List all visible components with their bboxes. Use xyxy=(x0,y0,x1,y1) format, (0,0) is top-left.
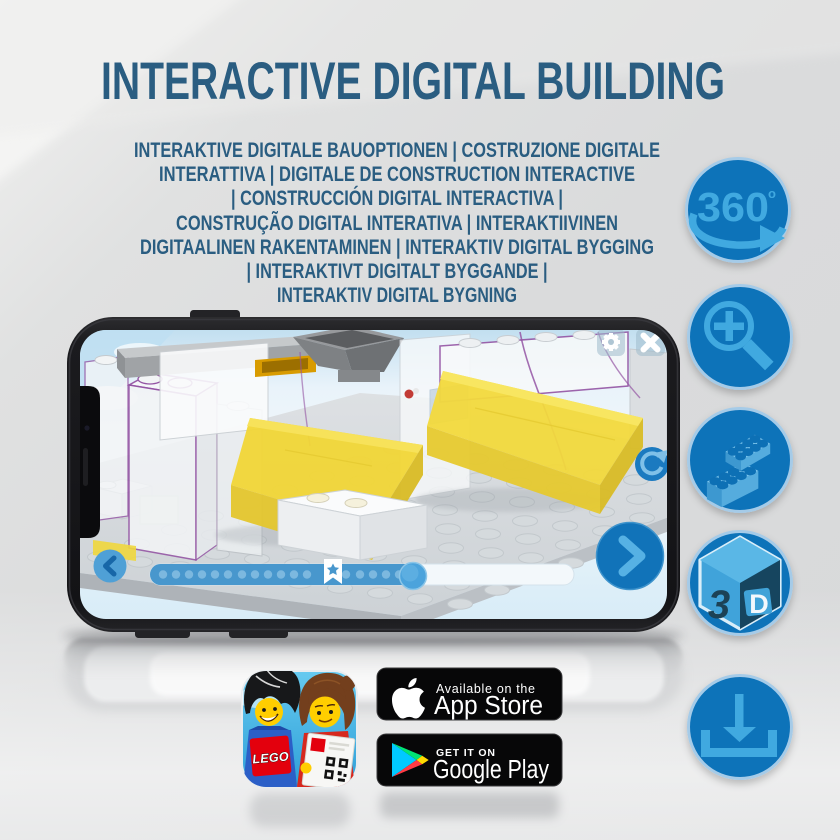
svg-text:| CONSTRUCCIÓN DIGITAL INTERAC: | CONSTRUCCIÓN DIGITAL INTERACTIVA | xyxy=(231,186,563,210)
svg-text:360: 360 xyxy=(697,184,769,230)
svg-text:DIGITAALINEN RAKENTAMINEN | IN: DIGITAALINEN RAKENTAMINEN | INTERAKTIV D… xyxy=(140,236,654,259)
svg-text:INTERATTIVA | DIGITALE DE CONS: INTERATTIVA | DIGITALE DE CONSTRUCTION I… xyxy=(159,163,635,186)
svg-text:3: 3 xyxy=(708,583,730,627)
svg-text:App Store: App Store xyxy=(434,692,543,720)
svg-text:INTERAKTIVE DIGITALE BAUOPTION: INTERAKTIVE DIGITALE BAUOPTIONEN | COSTR… xyxy=(134,139,660,162)
svg-text:INTERAKTIV DIGITAL BYGNING: INTERAKTIV DIGITAL BYGNING xyxy=(277,284,517,307)
svg-text:Google Play: Google Play xyxy=(433,756,549,784)
svg-text:D: D xyxy=(749,589,769,619)
svg-text:o: o xyxy=(768,186,776,201)
svg-text:| INTERAKTIVT DIGITALT BYGGAND: | INTERAKTIVT DIGITALT BYGGANDE | xyxy=(247,260,548,283)
svg-text:CONSTRUÇÃO DIGITAL INTERATIVA: CONSTRUÇÃO DIGITAL INTERATIVA | INTERAKT… xyxy=(176,212,618,235)
svg-text:INTERACTIVE DIGITAL BUILDING: INTERACTIVE DIGITAL BUILDING xyxy=(101,52,725,111)
